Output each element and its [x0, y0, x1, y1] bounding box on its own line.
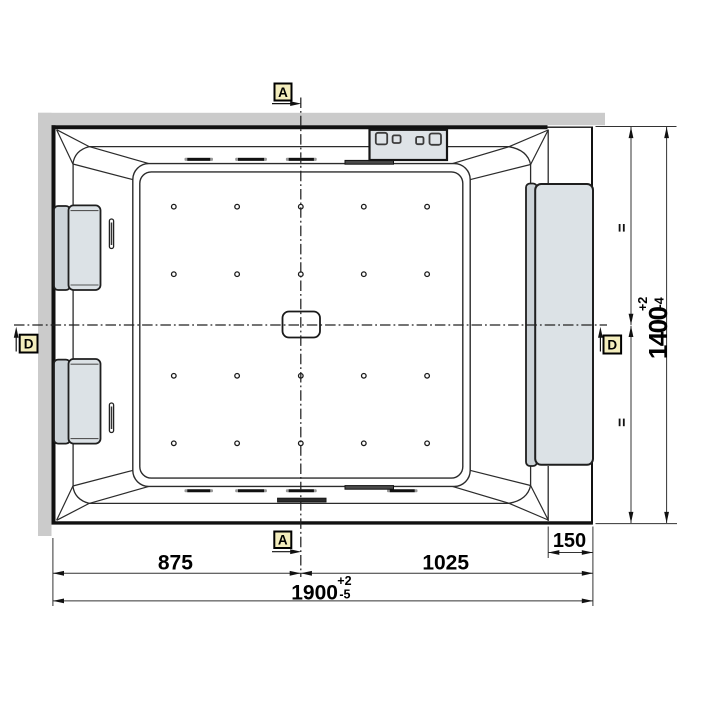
svg-text:-4: -4: [652, 297, 666, 308]
svg-text:A: A: [278, 533, 288, 548]
svg-text:1900: 1900: [291, 581, 338, 604]
svg-text:D: D: [24, 337, 34, 352]
svg-text:+2: +2: [337, 574, 351, 588]
svg-text:-5: -5: [339, 587, 350, 601]
svg-text:A: A: [278, 85, 288, 100]
svg-text:875: 875: [158, 552, 193, 575]
svg-text:D: D: [607, 338, 617, 353]
svg-text:1400: 1400: [643, 307, 673, 360]
svg-text:+2: +2: [636, 297, 650, 311]
svg-text:1025: 1025: [422, 552, 469, 575]
svg-text:150: 150: [553, 530, 586, 552]
